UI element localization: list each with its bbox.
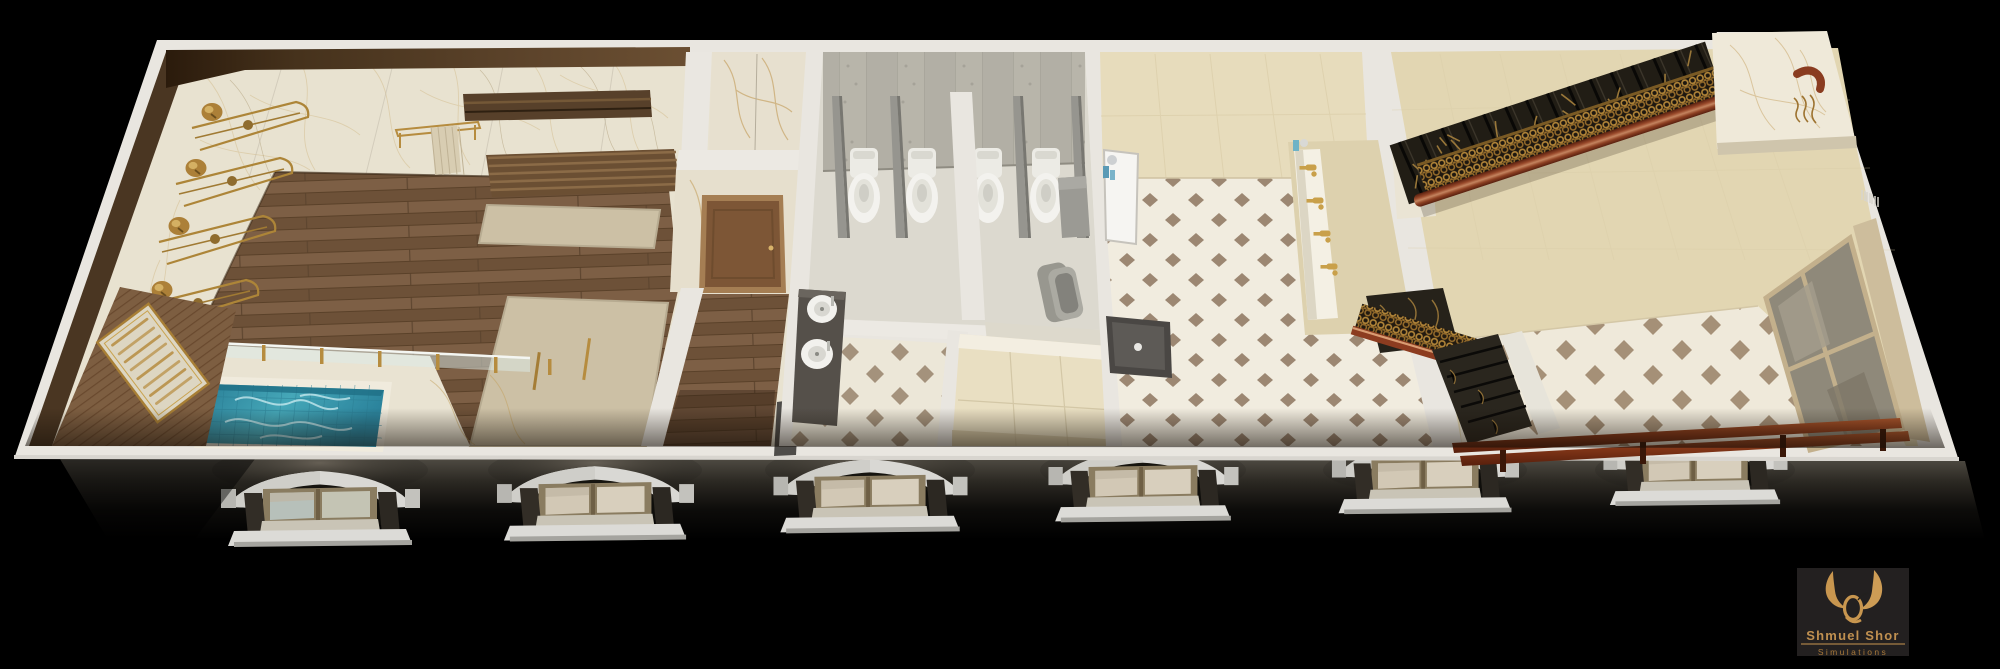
svg-text:Simulations: Simulations [1818,647,1888,657]
svg-text:Shmuel Shor: Shmuel Shor [1806,628,1899,643]
